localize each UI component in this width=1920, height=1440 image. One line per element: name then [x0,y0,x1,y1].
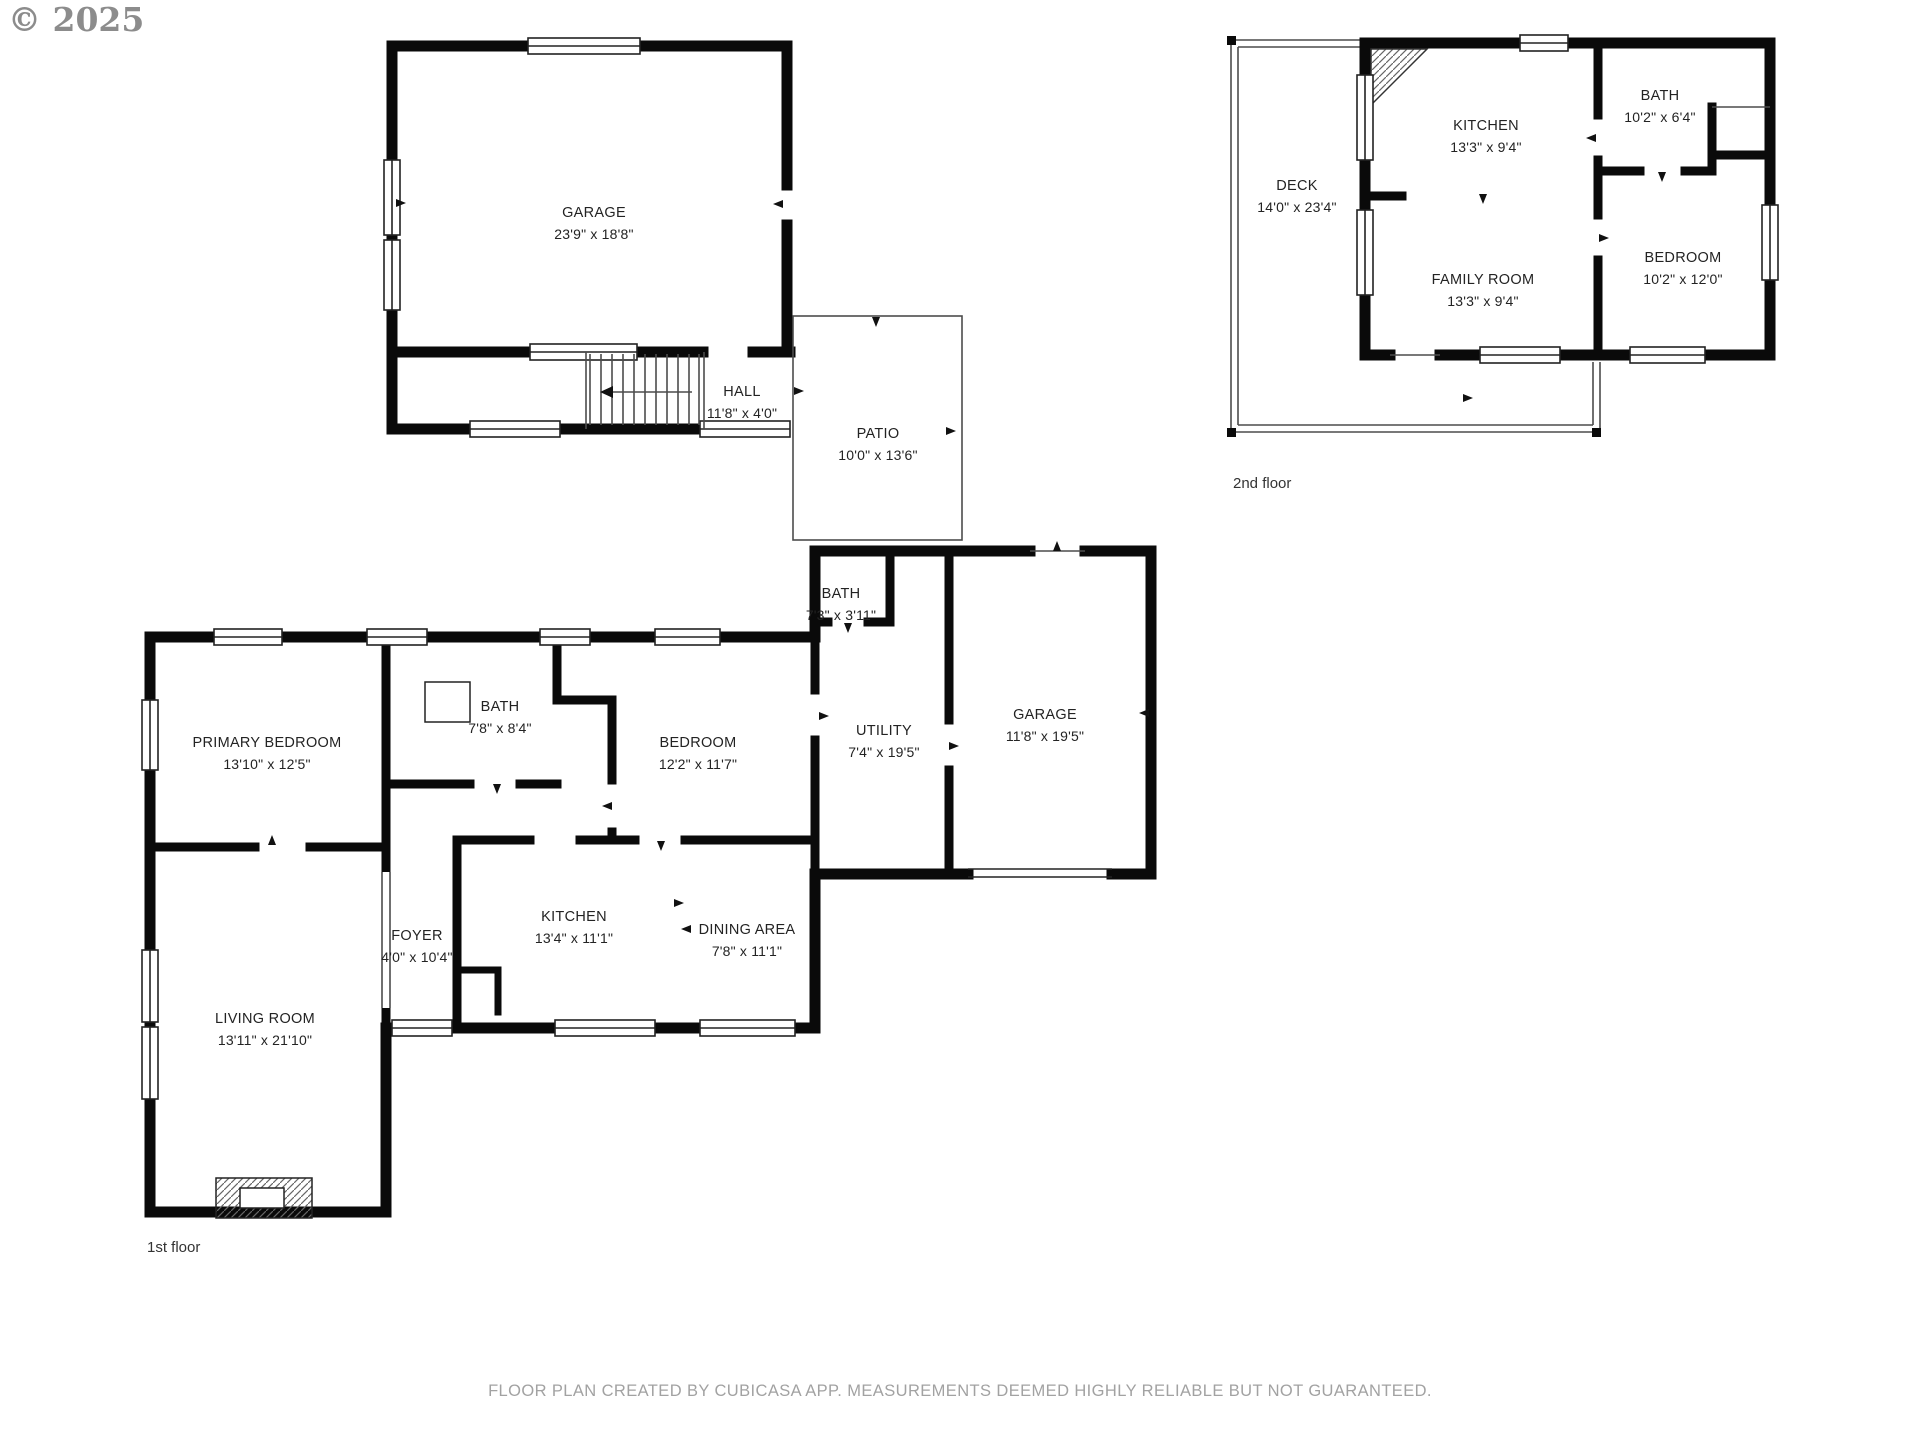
room-name: GARAGE [1006,705,1084,726]
room-dims: 11'8" x 19'5" [1006,726,1084,747]
room-dims: 23'9" x 18'8" [554,224,633,245]
room-name: BEDROOM [659,733,737,754]
room-name: BATH [468,697,531,718]
room-name: BATH [806,584,876,605]
room-dims: 13'3" x 9'4" [1432,291,1535,312]
room-dims: 7'8" x 11'1" [699,941,796,962]
room-name: UTILITY [848,721,919,742]
front-door [392,1020,452,1036]
room-label-kitchen-2: KITCHEN 13'3" x 9'4" [1450,116,1521,158]
patio-marker [946,427,956,435]
room-dims: 13'4" x 11'1" [535,928,613,949]
garage-door [968,869,1112,877]
room-dims: 14'0" x 23'4" [1257,197,1336,218]
room-name: FOYER [381,926,452,947]
first-floor-label: 1st floor [147,1239,200,1256]
room-label-living-room: LIVING ROOM 13'11" x 21'10" [215,1009,315,1051]
room-label-family-room: FAMILY ROOM 13'3" x 9'4" [1432,270,1535,312]
room-label-hall: HALL 11'8" x 4'0" [707,382,777,424]
room-dims: 10'2" x 6'4" [1624,107,1695,128]
room-dims: 11'8" x 4'0" [707,403,777,424]
room-label-foyer: FOYER 4'0" x 10'4" [381,926,452,968]
room-label-bath-2: BATH 10'2" x 6'4" [1624,86,1695,128]
room-name: HALL [707,382,777,403]
room-name: GARAGE [554,203,633,224]
room-label-garage: GARAGE 11'8" x 19'5" [1006,705,1084,747]
room-name: KITCHEN [535,907,613,928]
patio-marker [872,317,880,327]
second-floor-label: 2nd floor [1233,475,1291,492]
second-floor-windows [1357,35,1778,363]
fireplace [216,1178,312,1218]
room-dims: 7'3" x 3'11" [806,605,876,626]
room-label-bath: BATH 7'8" x 8'4" [468,697,531,739]
first-floor-plan [142,541,1151,1218]
room-label-deck: DECK 14'0" x 23'4" [1257,176,1336,218]
room-name: KITCHEN [1450,116,1521,137]
room-label-bath-small: BATH 7'3" x 3'11" [806,584,876,626]
room-label-bedroom-2: BEDROOM 10'2" x 12'0" [1643,248,1722,290]
room-dims: 12'2" x 11'7" [659,754,737,775]
room-label-kitchen: KITCHEN 13'4" x 11'1" [535,907,613,949]
staircase [586,352,704,429]
room-name: DINING AREA [699,920,796,941]
room-name: BEDROOM [1643,248,1722,269]
disclaimer-text: FLOOR PLAN CREATED BY CUBICASA APP. MEAS… [0,1382,1920,1401]
room-dims: 4'0" x 10'4" [381,947,452,968]
room-label-dining: DINING AREA 7'8" x 11'1" [699,920,796,962]
room-name: BATH [1624,86,1695,107]
room-label-utility: UTILITY 7'4" x 19'5" [848,721,919,763]
room-name: FAMILY ROOM [1432,270,1535,291]
room-dims: 10'2" x 12'0" [1643,269,1722,290]
room-dims: 13'10" x 12'5" [193,754,342,775]
room-name: PRIMARY BEDROOM [193,733,342,754]
room-label-bedroom: BEDROOM 12'2" x 11'7" [659,733,737,775]
room-name: LIVING ROOM [215,1009,315,1030]
corner-pantry [1371,49,1427,105]
stair-direction-arrow [600,386,613,398]
room-dims: 7'8" x 8'4" [468,718,531,739]
room-name: DECK [1257,176,1336,197]
room-label-primary-bedroom: PRIMARY BEDROOM 13'10" x 12'5" [193,733,342,775]
bath-shower [425,682,470,722]
deck-railing [1227,36,1601,437]
floorplan-svg [0,0,1920,1440]
room-label-patio: PATIO 10'0" x 13'6" [838,424,917,466]
room-dims: 10'0" x 13'6" [838,445,917,466]
room-label-garage-upper: GARAGE 23'9" x 18'8" [554,203,633,245]
room-dims: 7'4" x 19'5" [848,742,919,763]
room-dims: 13'11" x 21'10" [215,1030,315,1051]
room-name: PATIO [838,424,917,445]
room-dims: 13'3" x 9'4" [1450,137,1521,158]
copyright-watermark: © 2025 [8,0,144,39]
